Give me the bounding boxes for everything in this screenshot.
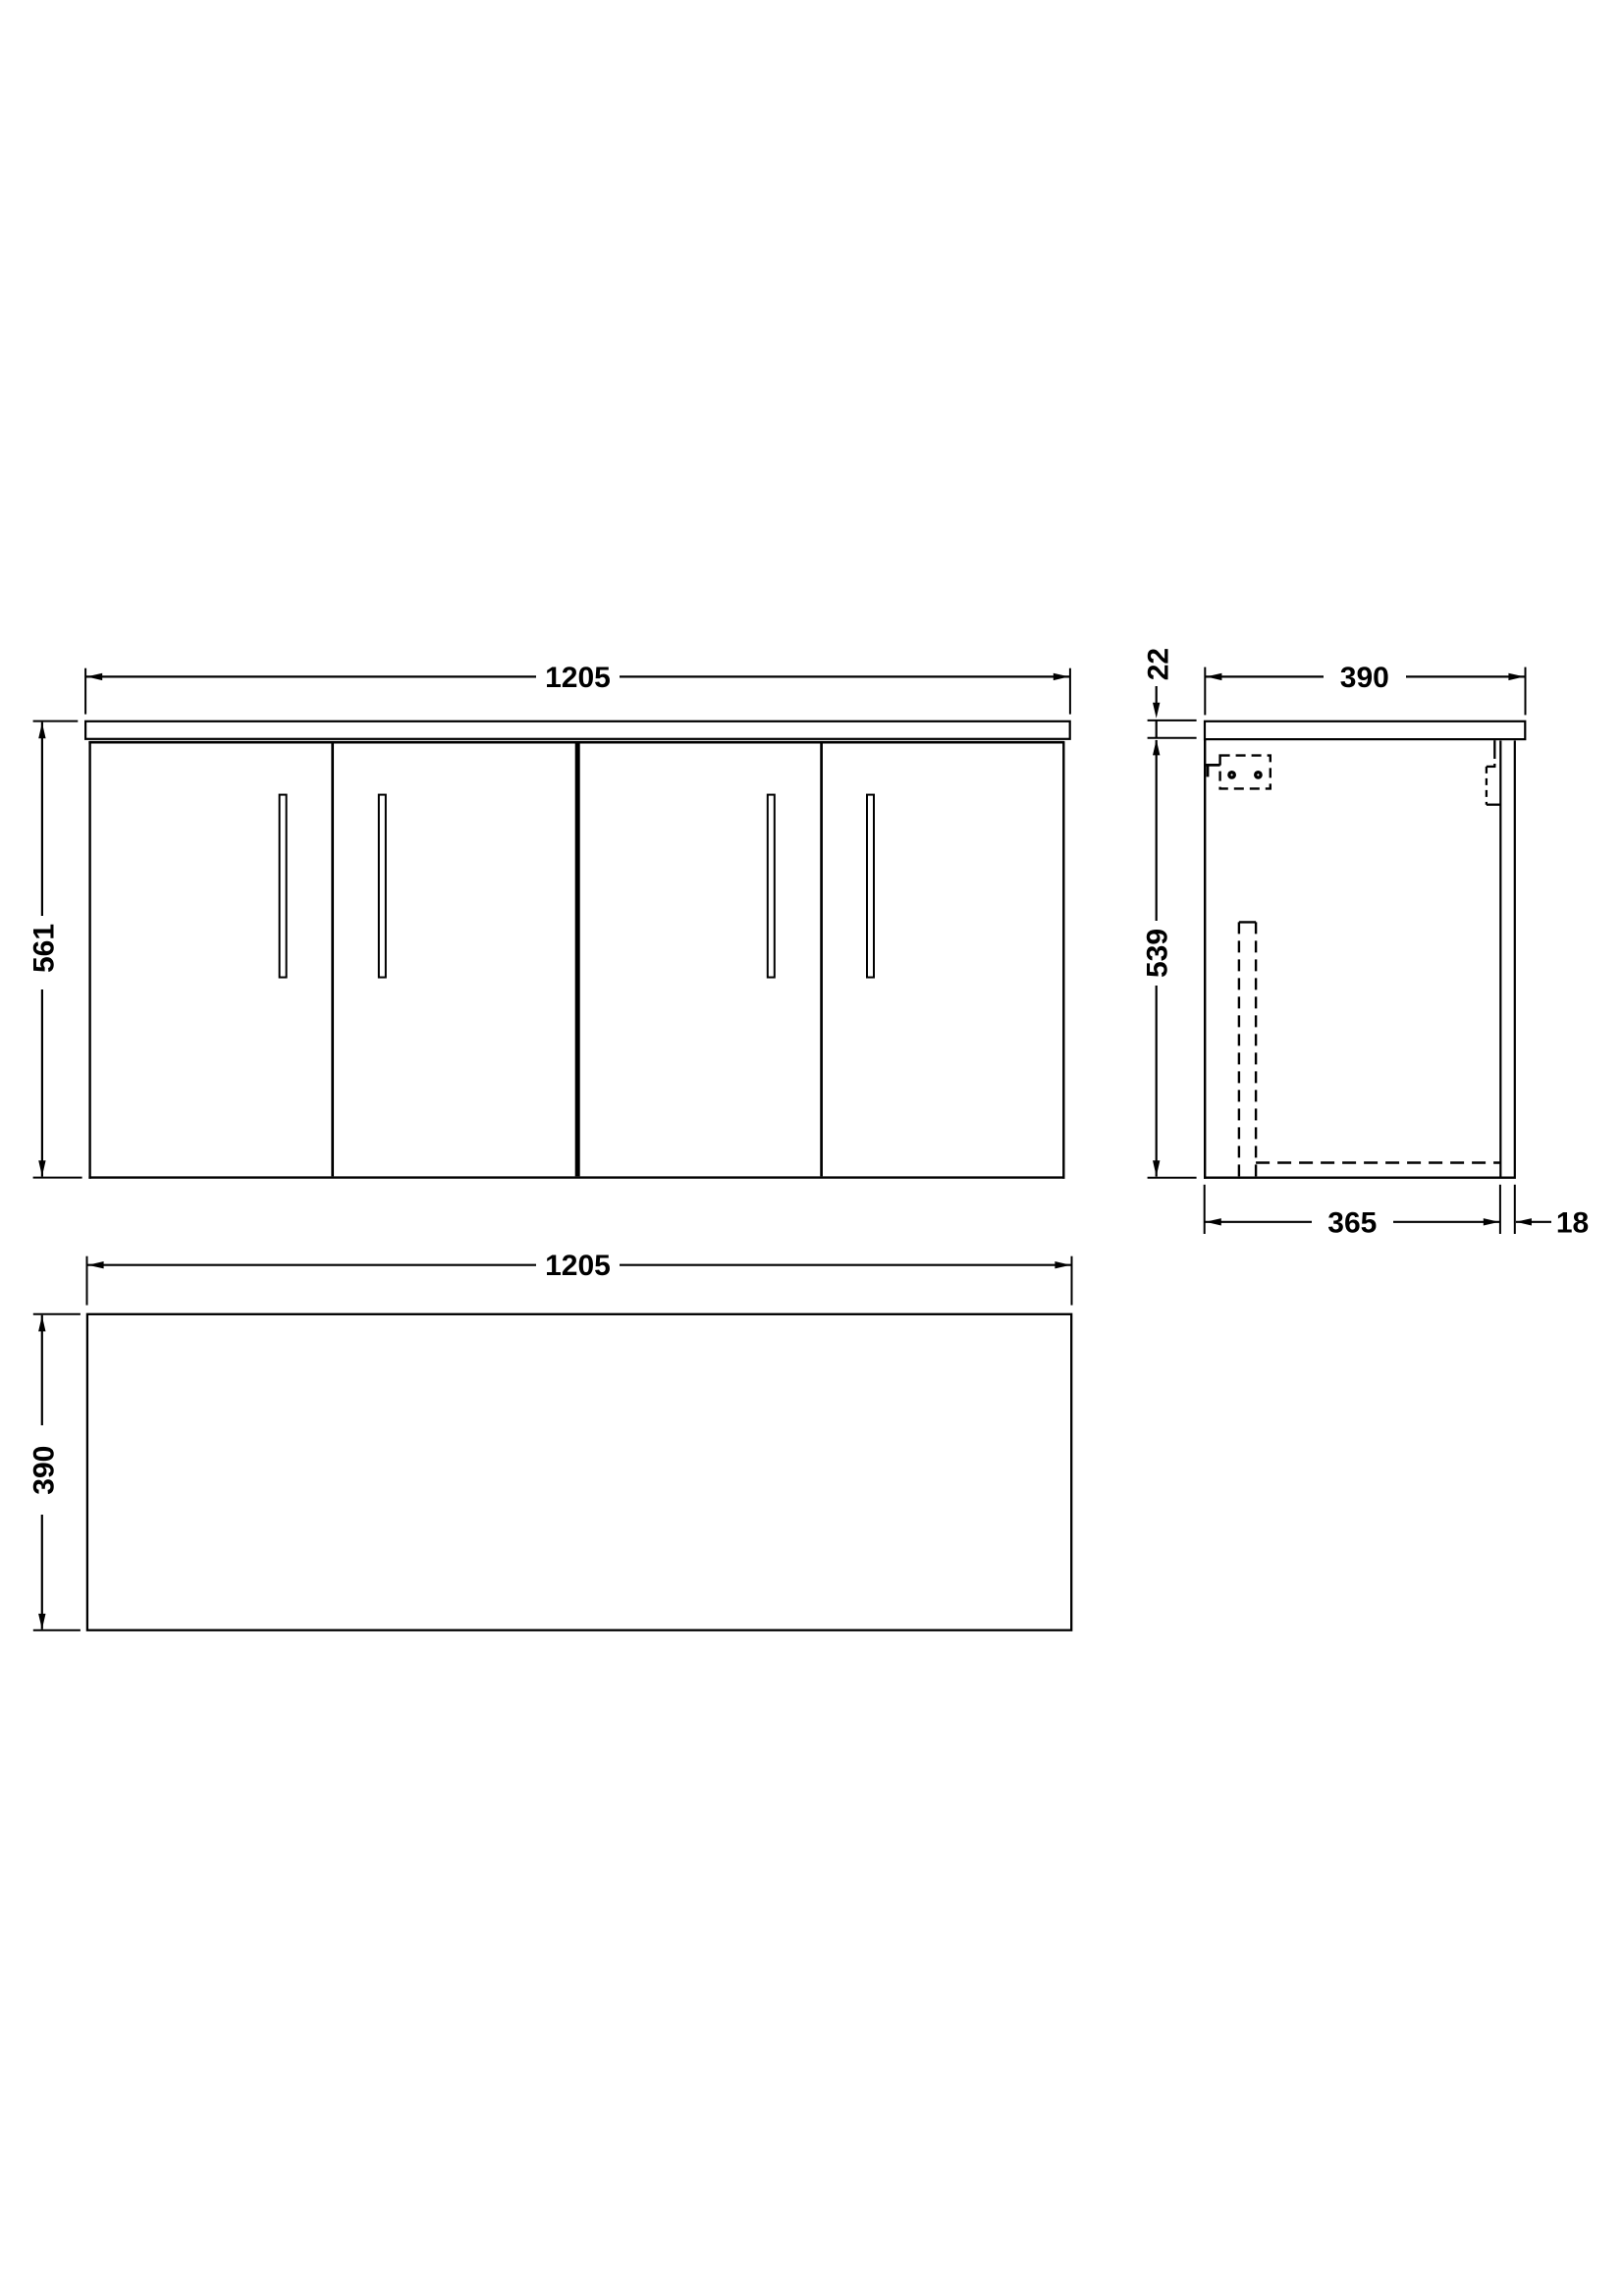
svg-text:1205: 1205 [545, 662, 611, 694]
svg-text:390: 390 [1340, 662, 1389, 694]
svg-text:390: 390 [28, 1446, 61, 1495]
svg-text:561: 561 [28, 924, 61, 973]
svg-text:539: 539 [1141, 929, 1173, 978]
svg-text:365: 365 [1327, 1206, 1377, 1239]
svg-text:18: 18 [1556, 1206, 1589, 1239]
svg-text:1205: 1205 [545, 1250, 611, 1282]
svg-text:22: 22 [1142, 648, 1174, 680]
